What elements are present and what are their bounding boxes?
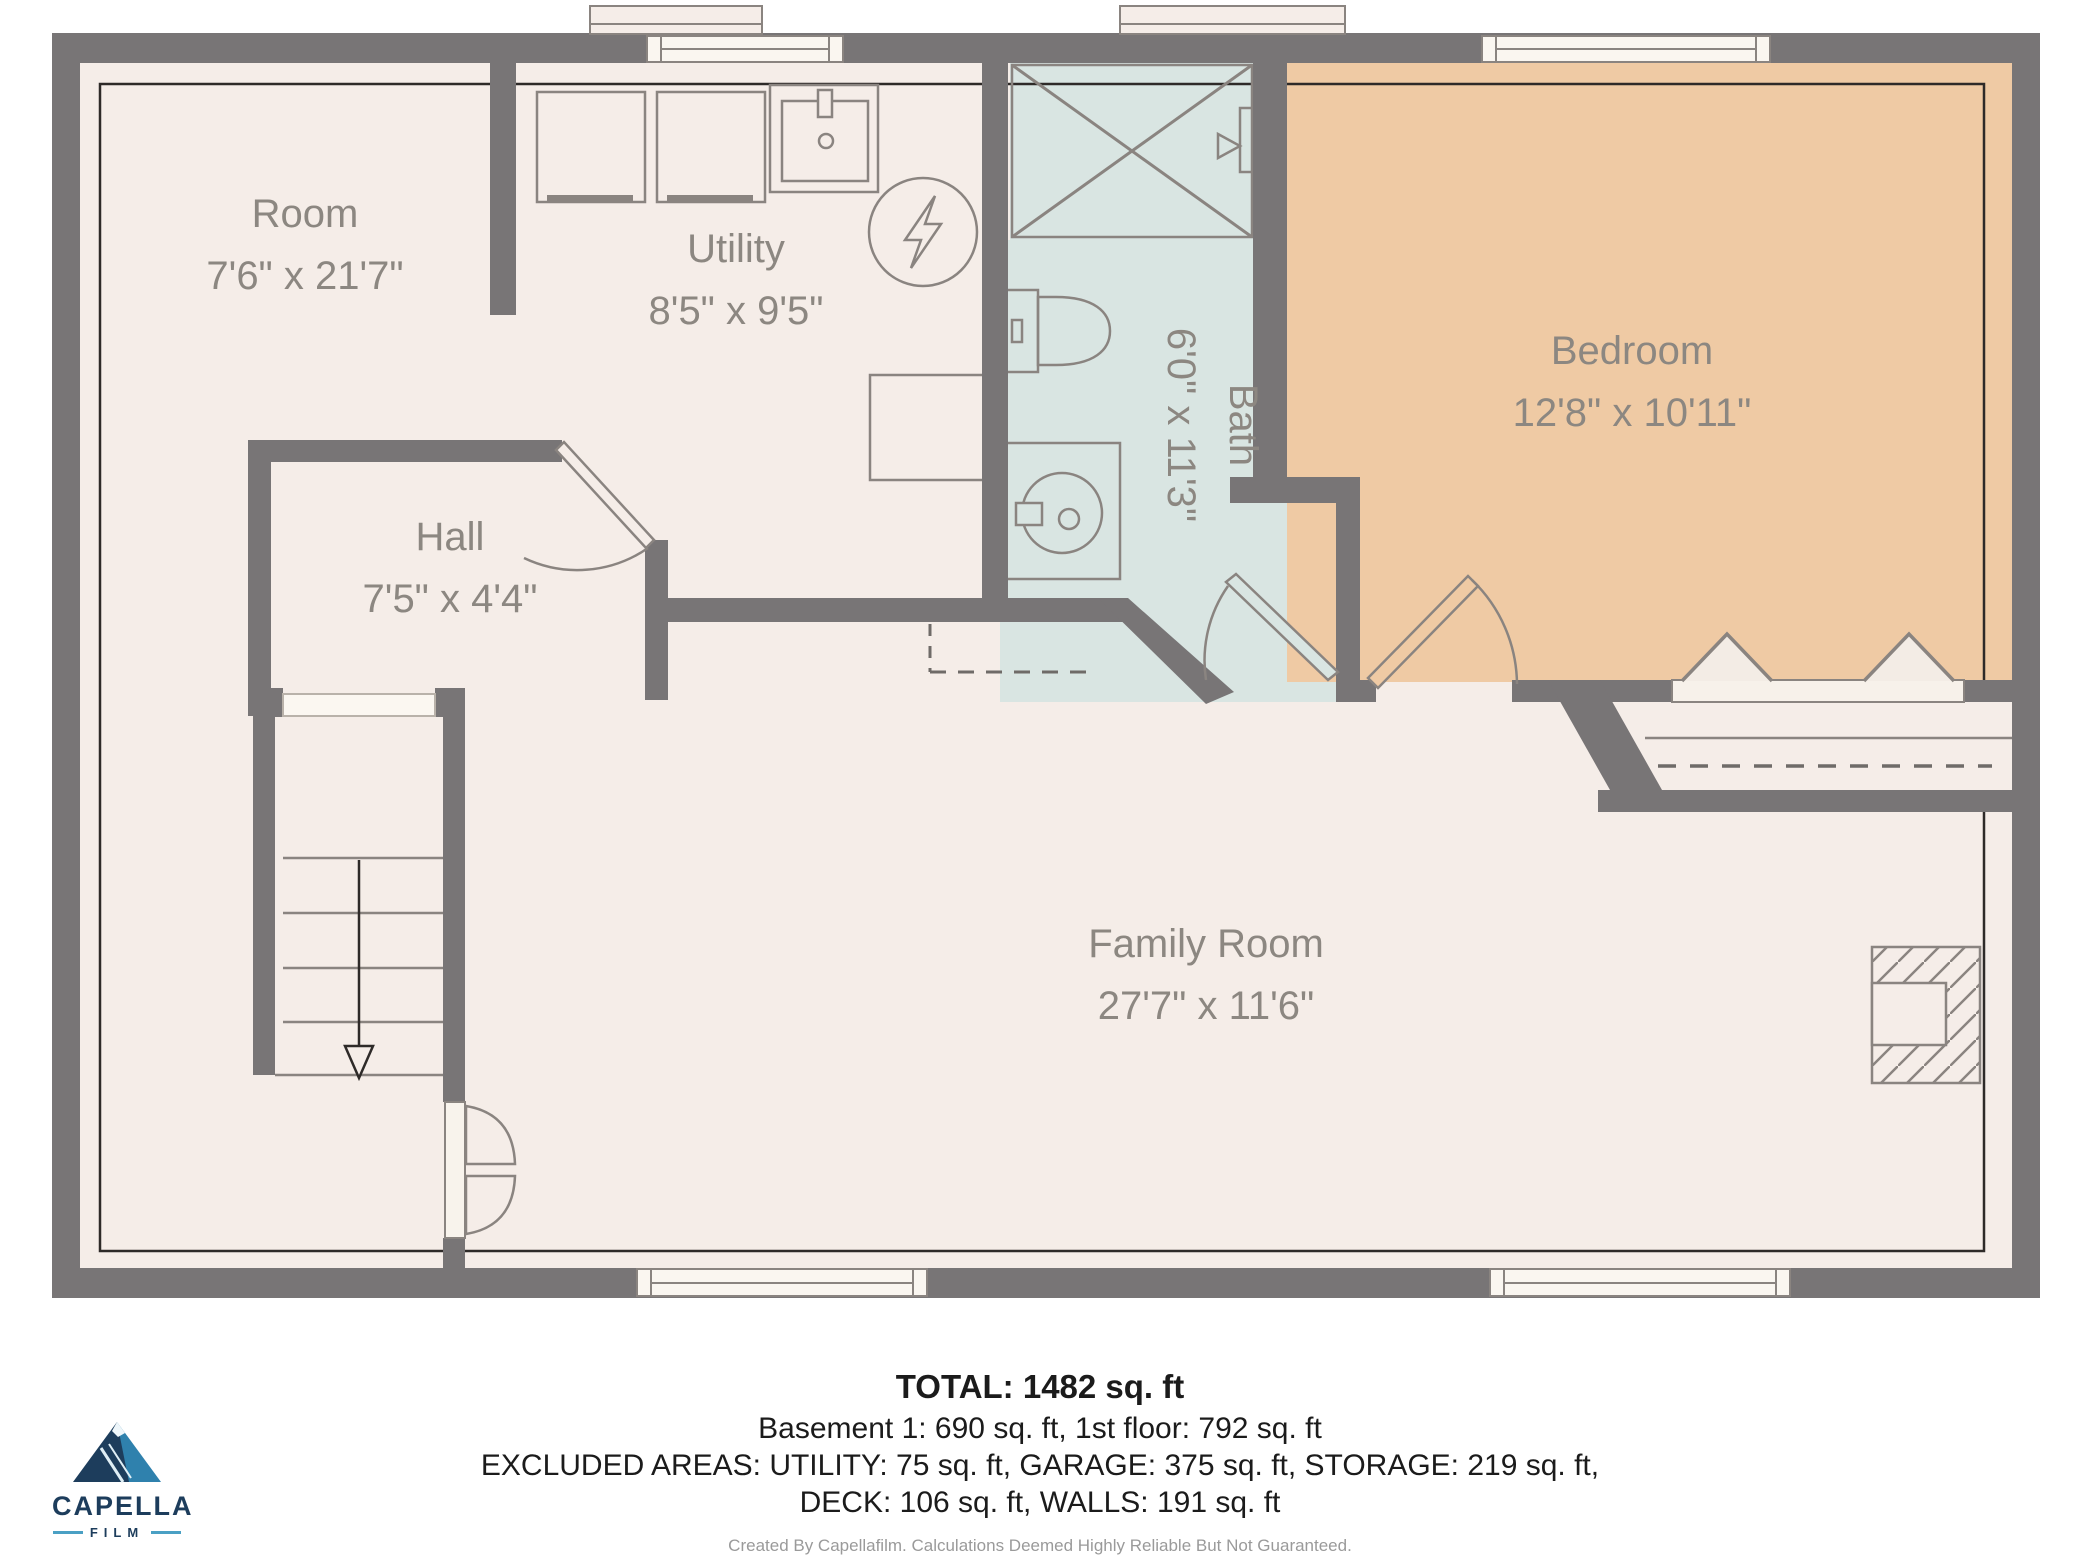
bath-label: Bath 6'0" x 11'3": [1150, 328, 1274, 522]
logo-brand-text: CAPELLA: [52, 1491, 182, 1522]
fireplace-icon: [1872, 947, 1980, 1083]
logo-right-bar: [151, 1531, 181, 1534]
area-summary: TOTAL: 1482 sq. ft Basement 1: 690 sq. f…: [0, 1368, 2080, 1556]
logo-sub-text: FILM: [90, 1525, 144, 1540]
deck-lines: [1645, 702, 2012, 790]
hall-dims: 7'5" x 4'4": [363, 568, 538, 630]
excluded-areas-1: EXCLUDED AREAS: UTILITY: 75 sq. ft, GARA…: [0, 1449, 2080, 1483]
capella-logo: CAPELLA FILM: [52, 1420, 182, 1540]
bath-dims: 6'0" x 11'3": [1150, 328, 1212, 522]
logo-left-bar: [53, 1531, 83, 1534]
bedroom-dims: 12'8" x 10'11": [1513, 382, 1752, 444]
bath-name: Bath: [1212, 328, 1274, 522]
bedroom-label: Bedroom 12'8" x 10'11": [1513, 320, 1752, 444]
room-name: Room: [206, 183, 403, 245]
stairwell-window-icon: [283, 694, 435, 716]
hall-label: Hall 7'5" x 4'4": [363, 506, 538, 630]
floor-areas: Basement 1: 690 sq. ft, 1st floor: 792 s…: [0, 1412, 2080, 1446]
family-room-dims: 27'7" x 11'6": [1088, 975, 1324, 1037]
family-room-label: Family Room 27'7" x 11'6": [1088, 913, 1324, 1037]
disclaimer: Created By Capellafilm. Calculations Dee…: [0, 1536, 2080, 1556]
window-well-icon: [590, 6, 1345, 34]
family-room-name: Family Room: [1088, 913, 1324, 975]
utility-name: Utility: [649, 218, 824, 280]
hall-name: Hall: [363, 506, 538, 568]
utility-label: Utility 8'5" x 9'5": [649, 218, 824, 342]
mountain-logo-icon: [71, 1420, 163, 1484]
room-label: Room 7'6" x 21'7": [206, 183, 403, 307]
utility-dims: 8'5" x 9'5": [649, 280, 824, 342]
total-area: TOTAL: 1482 sq. ft: [0, 1368, 2080, 1406]
bedroom-name: Bedroom: [1513, 320, 1752, 382]
excluded-areas-2: DECK: 106 sq. ft, WALLS: 191 sq. ft: [0, 1486, 2080, 1520]
logo-sub-row: FILM: [52, 1525, 182, 1540]
room-dims: 7'6" x 21'7": [206, 245, 403, 307]
floor-plan-page: Room 7'6" x 21'7" Utility 8'5" x 9'5" Ha…: [0, 0, 2080, 1560]
